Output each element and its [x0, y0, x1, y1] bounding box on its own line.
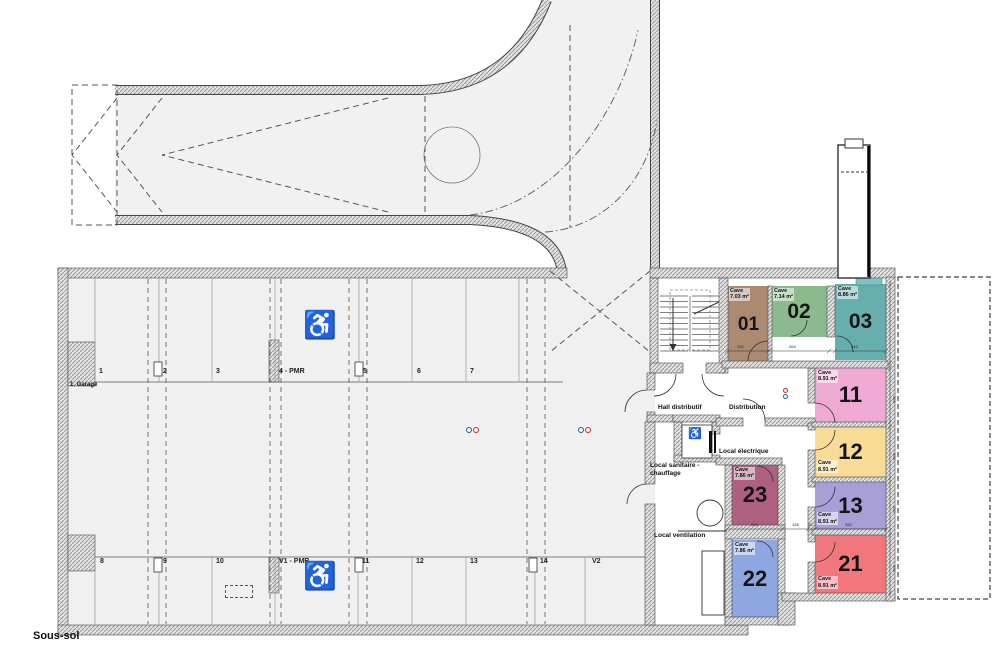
equipment-marker	[466, 427, 479, 433]
parking-stall-label-2: 2	[163, 368, 167, 375]
distribution-marker	[783, 388, 788, 399]
plan-annotations: Sous-sol 1. Garage 1234 - PMR5678910V1 -…	[0, 0, 1000, 658]
parking-stall-label-11: 11	[362, 558, 369, 565]
wheelchair-icon: ♿	[303, 312, 337, 339]
elevator-wheelchair-icon: ♿	[688, 429, 702, 440]
parking-stall-label-7: 7	[470, 368, 474, 375]
dashed-equipment-box	[225, 585, 253, 598]
parking-stall-label-5: 5	[363, 368, 367, 375]
wheelchair-icon: ♿	[303, 563, 337, 590]
garage-zone-label: 1. Garage	[70, 382, 97, 388]
parking-stall-label-3: 3	[216, 368, 220, 375]
parking-stall-label-14: 14	[540, 558, 548, 565]
room-label-local-ventilation: Local ventilation	[654, 532, 705, 540]
parking-stall-label-6: 6	[417, 368, 421, 375]
room-label-distribution: Distribution	[729, 404, 765, 412]
room-label-hall-distributif: Hall distributif	[658, 404, 702, 412]
room-label-local-sanitaire-chauffage: Local sanitaire - chauffage	[650, 462, 700, 478]
parking-stall-label-9: 9	[163, 558, 167, 565]
parking-stall-label-13: 13	[470, 558, 478, 565]
room-label-local-electrique: Local électrique	[719, 448, 769, 456]
parking-stall-label-V2: V2	[592, 558, 601, 565]
parking-stall-label-1: 1	[99, 368, 103, 375]
parking-stall-label-4-PMR: 4 - PMR	[279, 368, 305, 375]
parking-stall-label-10: 10	[216, 558, 224, 565]
equipment-marker	[578, 427, 591, 433]
floor-title: Sous-sol	[33, 630, 79, 642]
floor-plan: 01Cave 7.03 m²02Cave 7.14 m²03Cave 8.86 …	[0, 0, 1000, 658]
parking-stall-label-8: 8	[100, 558, 104, 565]
parking-stall-label-12: 12	[416, 558, 424, 565]
